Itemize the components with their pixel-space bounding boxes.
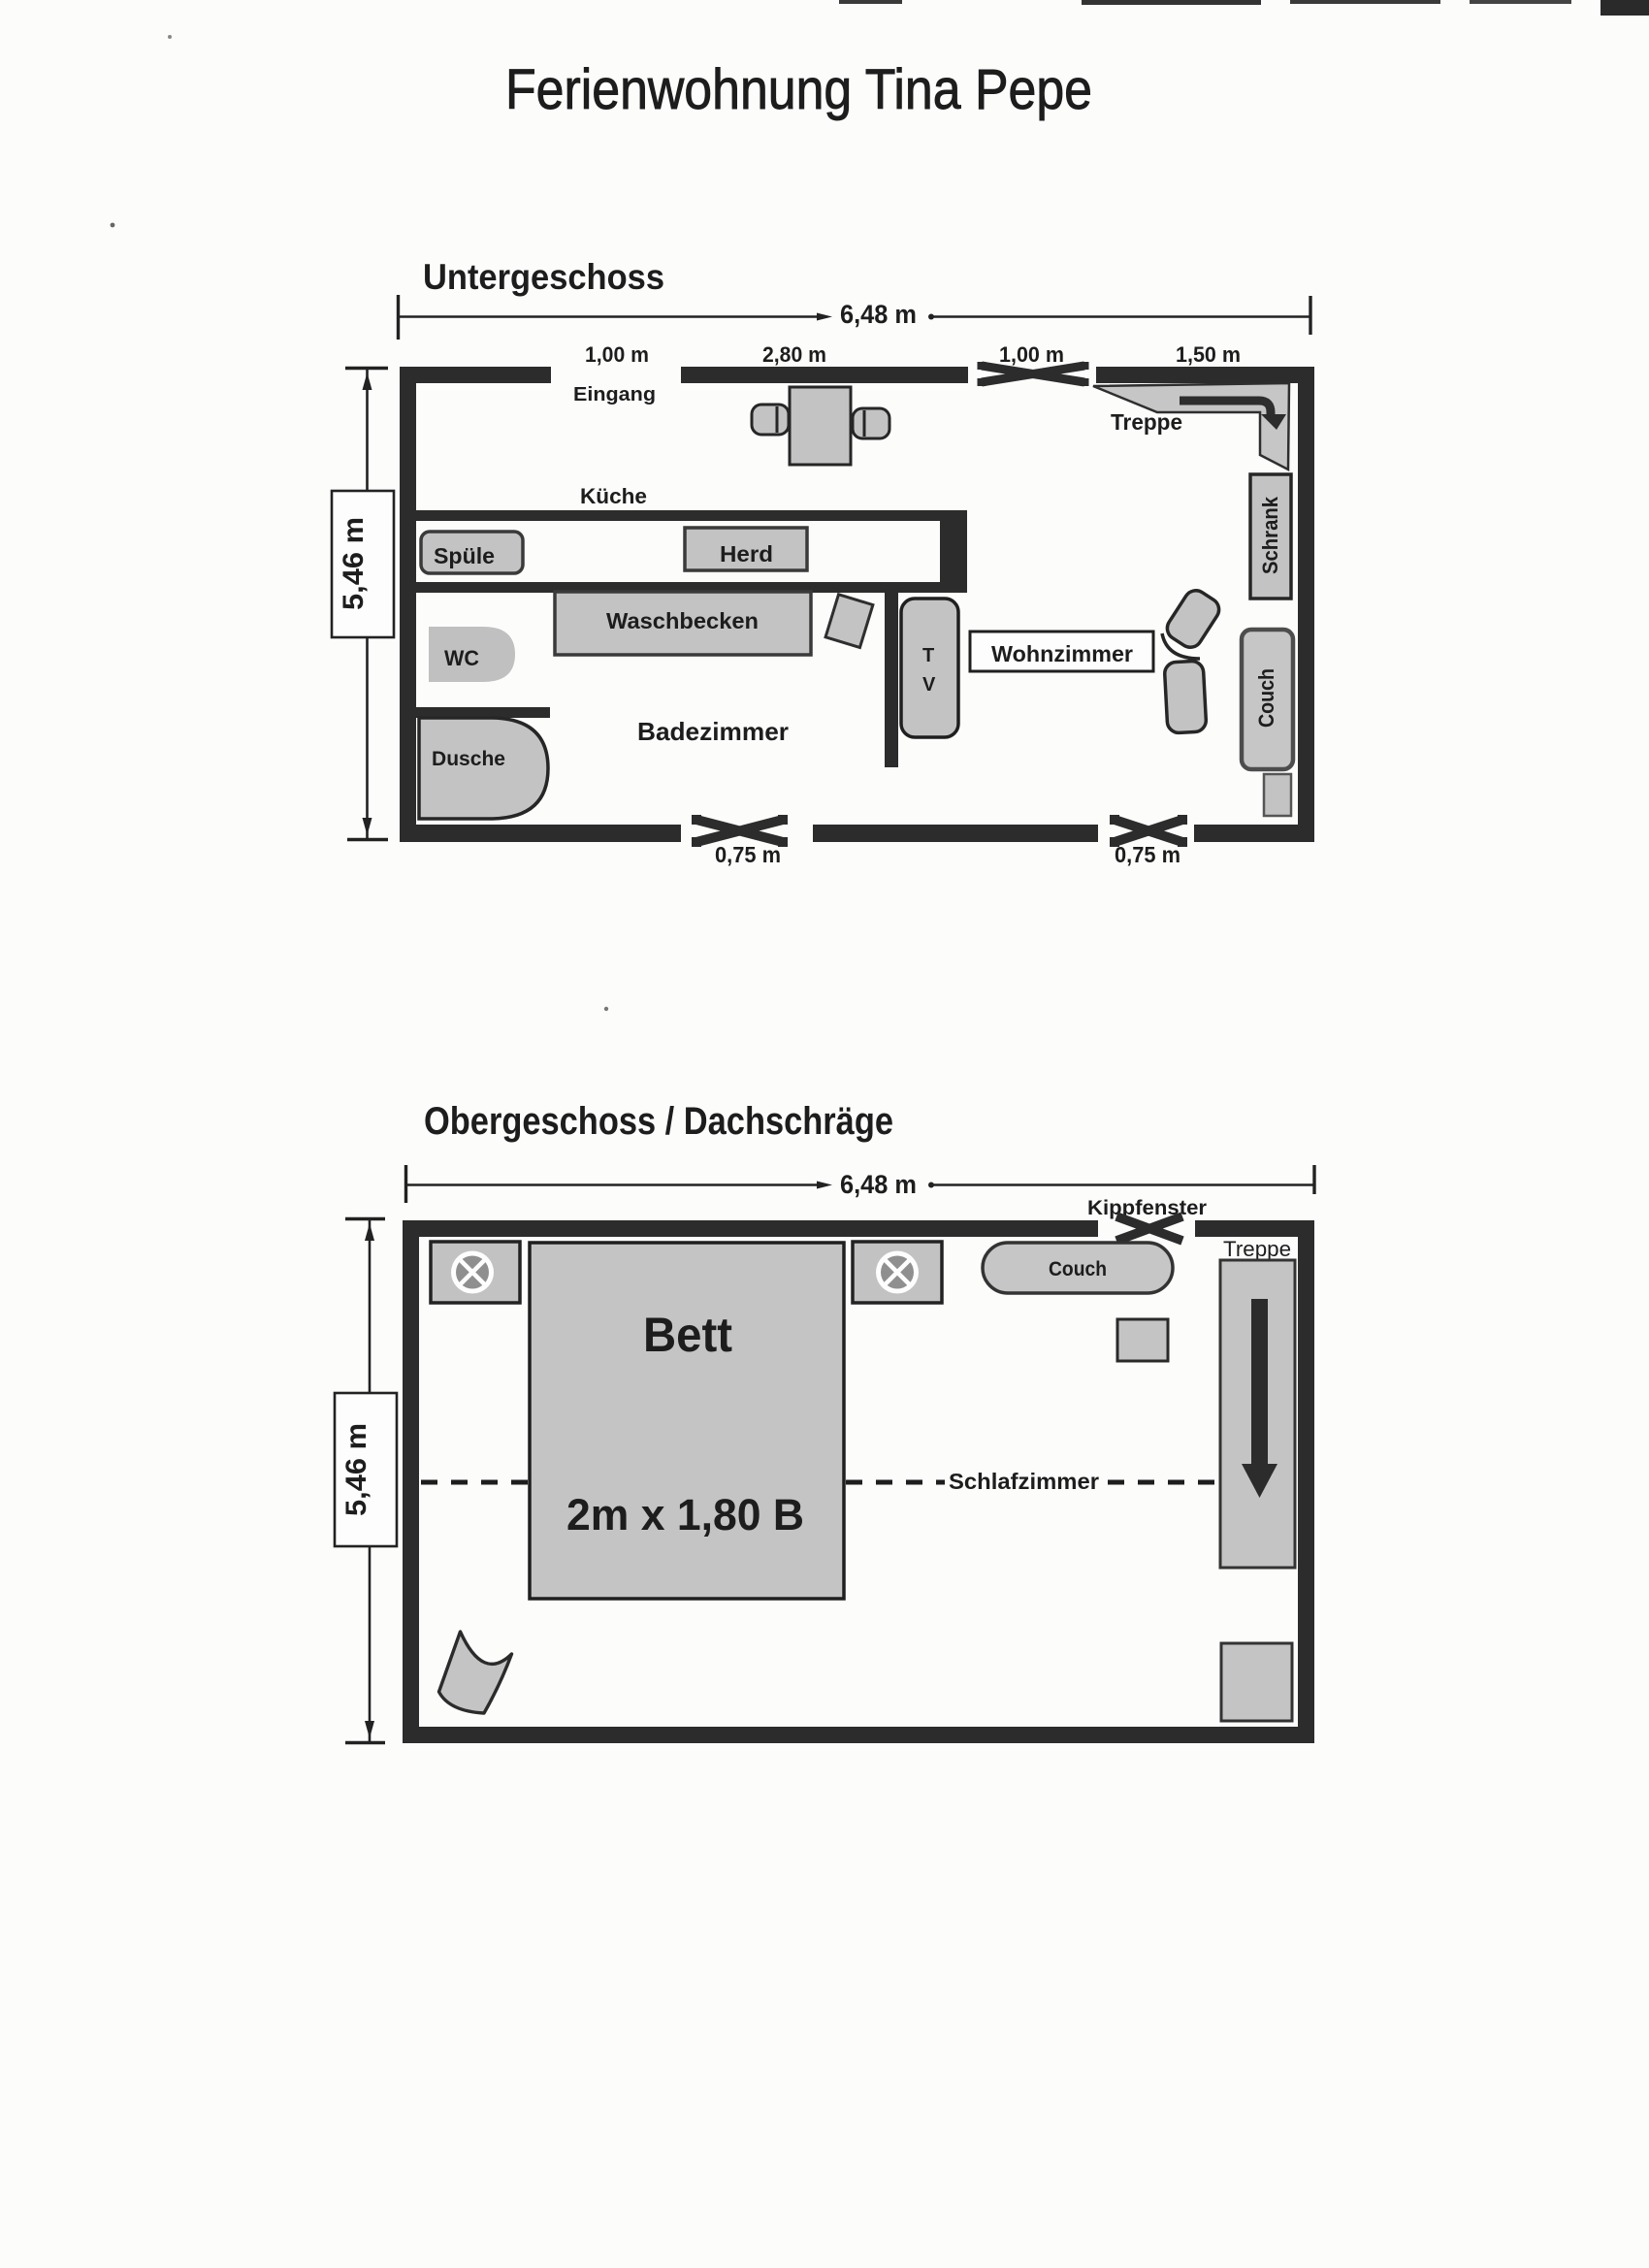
- svg-text:0,75 m: 0,75 m: [715, 842, 781, 867]
- svg-text:V: V: [922, 674, 936, 696]
- svg-text:Ferienwohnung Tina Pepe: Ferienwohnung Tina Pepe: [505, 58, 1092, 121]
- svg-text:Treppe: Treppe: [1111, 409, 1182, 435]
- svg-text:Herd: Herd: [720, 541, 773, 567]
- svg-text:Couch: Couch: [1254, 668, 1278, 728]
- svg-text:Spüle: Spüle: [434, 543, 495, 568]
- svg-text:Waschbecken: Waschbecken: [606, 608, 759, 633]
- svg-text:Schrank: Schrank: [1258, 496, 1282, 574]
- svg-text:6,48 m: 6,48 m: [840, 300, 917, 329]
- svg-text:5,46 m: 5,46 m: [340, 1423, 372, 1516]
- svg-text:2m x 1,80 B: 2m x 1,80 B: [566, 1490, 804, 1539]
- svg-text:1,00 m: 1,00 m: [999, 342, 1064, 367]
- svg-text:T: T: [922, 645, 934, 666]
- svg-text:Schlafzimmer: Schlafzimmer: [949, 1469, 1099, 1494]
- svg-text:Bett: Bett: [643, 1308, 732, 1362]
- svg-text:1,00 m: 1,00 m: [585, 342, 649, 367]
- svg-text:2,80 m: 2,80 m: [762, 342, 826, 367]
- svg-text:6,48 m: 6,48 m: [840, 1170, 917, 1199]
- svg-text:Untergeschoss: Untergeschoss: [423, 257, 664, 297]
- svg-text:Eingang: Eingang: [573, 384, 656, 405]
- svg-text:1,50 m: 1,50 m: [1176, 342, 1241, 367]
- svg-text:Küche: Küche: [580, 484, 647, 508]
- svg-text:Obergeschoss / Dachschräge: Obergeschoss / Dachschräge: [424, 1100, 893, 1143]
- svg-text:Badezimmer: Badezimmer: [637, 717, 789, 746]
- svg-text:Kippfenster: Kippfenster: [1087, 1197, 1207, 1219]
- svg-text:Treppe: Treppe: [1223, 1237, 1291, 1261]
- svg-text:0,75 m: 0,75 m: [1115, 842, 1180, 867]
- svg-text:Dusche: Dusche: [432, 748, 505, 770]
- svg-text:WC: WC: [444, 646, 479, 670]
- svg-text:Wohnzimmer: Wohnzimmer: [991, 641, 1133, 666]
- svg-text:5,46 m: 5,46 m: [338, 517, 370, 610]
- svg-text:Couch: Couch: [1049, 1258, 1107, 1280]
